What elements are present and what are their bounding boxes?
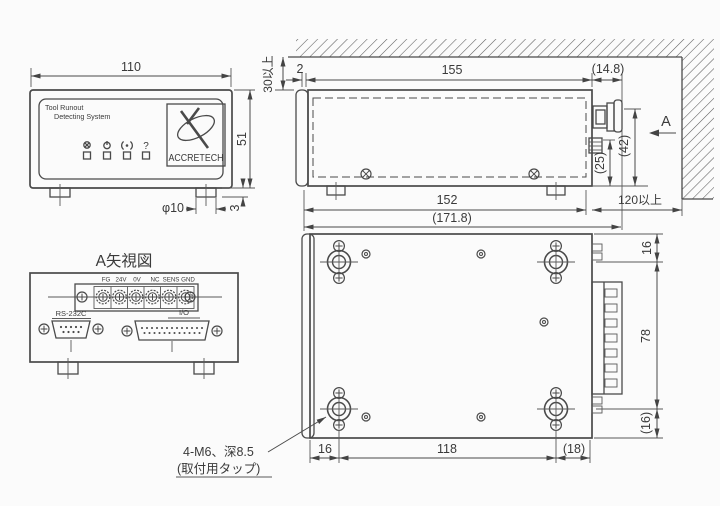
indicator-power — [104, 141, 111, 159]
front-view: 110 Tool Runout Detecting System ? — [30, 60, 255, 215]
dim-foot-dia: φ10 — [162, 201, 184, 215]
small-screw-icon — [540, 318, 548, 326]
view-a-title: A矢視図 — [96, 252, 153, 270]
product-name-line1: Tool Runout — [45, 103, 83, 112]
dim-connector-protrusion: (14.8) — [592, 62, 625, 76]
callout-line1: 4-M6、深8.5 — [183, 445, 254, 459]
io-jack-screw-icon — [212, 326, 222, 336]
small-screw-icon — [362, 250, 370, 258]
logo-stroke-icon — [181, 111, 208, 148]
dim-connector-span: 78 — [639, 329, 653, 343]
dim-body-depth: 155 — [442, 63, 463, 77]
indicator-signal — [122, 142, 133, 160]
dim-edge-top: 16 — [640, 241, 654, 255]
dim-base-depth: 152 — [437, 193, 458, 207]
product-name-line2: Detecting System — [54, 112, 110, 121]
engineering-drawing: 110 Tool Runout Detecting System ? — [0, 0, 720, 506]
dim-hole-pitch: 118 — [437, 442, 457, 456]
small-screw-icon — [477, 250, 485, 258]
view-a-arrow-icon — [649, 130, 659, 137]
terminal-label-0v: 0V — [133, 277, 141, 284]
dim-edge-right: (18) — [563, 442, 585, 456]
rs232c-jack-screw-icon — [39, 324, 49, 334]
io-label: I/O — [179, 308, 189, 317]
terminal-label-nc: NC — [151, 277, 160, 284]
dim-foot-height: 3 — [228, 204, 242, 211]
small-screw-icon — [362, 413, 370, 421]
question-icon: ? — [143, 141, 149, 152]
dim-wall-clearance: 30以上 — [261, 55, 275, 92]
rs232c-connector: RS-232C — [39, 309, 103, 352]
signal-lamp — [124, 152, 131, 159]
view-a-label: A — [661, 114, 671, 130]
rs232c-label: RS-232C — [56, 309, 87, 318]
dim-front-height: 51 — [235, 132, 249, 146]
plan-lid-hidden-edge — [313, 98, 586, 177]
bottom-bezel — [302, 234, 314, 438]
io-connector-profile — [593, 100, 622, 132]
dim-edge-bottom: (16) — [639, 412, 653, 434]
logo-stroke2-icon — [187, 108, 199, 124]
indicator-run — [84, 142, 91, 159]
wall-hatching — [296, 39, 714, 199]
dim-connector-top: (42) — [617, 135, 631, 157]
terminal-label-gnd: GND — [181, 277, 195, 284]
terminal-block-profile — [589, 138, 602, 153]
dim-lid-gap: 2 — [297, 62, 304, 76]
terminal-block: FG 24V 0V NC SENS GND — [75, 277, 198, 312]
view-a: A矢視図 FG 24V 0V NC SENS GND — [30, 252, 238, 379]
dim-edge-left: 16 — [318, 442, 332, 456]
io-jack-screw-icon — [122, 326, 132, 336]
dim-connector-mid: (25) — [593, 152, 607, 174]
indicator-help: ? — [143, 141, 150, 159]
run-lamp — [84, 152, 91, 159]
bottom-view: 16 78 (16) 16 118 (18) 4-M6、深8.5 (取付用タップ… — [176, 234, 663, 477]
help-lamp — [143, 152, 150, 159]
drawing-canvas: 110 Tool Runout Detecting System ? — [0, 0, 720, 506]
dim-overall-depth: (171.8) — [432, 211, 472, 225]
terminal-block-side — [592, 244, 622, 413]
terminal-label-24v: 24V — [115, 277, 127, 284]
plan-case-outline — [308, 90, 592, 186]
brand-name: ACCRETECH — [169, 152, 224, 164]
callout-line2: (取付用タップ) — [177, 462, 260, 476]
terminal-label-fg: FG — [102, 277, 111, 284]
power-lamp — [104, 152, 111, 159]
terminal-label-sens: SENS — [163, 277, 180, 284]
io-connector: I/O — [122, 308, 222, 352]
plan-view: 30以上 2 155 (14.8) — [261, 39, 714, 231]
plan-front-bezel — [296, 90, 308, 186]
logo-ellipse-icon — [174, 110, 218, 145]
dim-front-width: 110 — [121, 60, 141, 74]
accretech-logo: ACCRETECH — [167, 104, 225, 166]
small-screw-icon — [477, 413, 485, 421]
dim-rear-clearance: 120以上 — [618, 193, 662, 207]
rs232c-jack-screw-icon — [93, 324, 103, 334]
tap-callout: 4-M6、深8.5 (取付用タップ) — [176, 417, 326, 477]
